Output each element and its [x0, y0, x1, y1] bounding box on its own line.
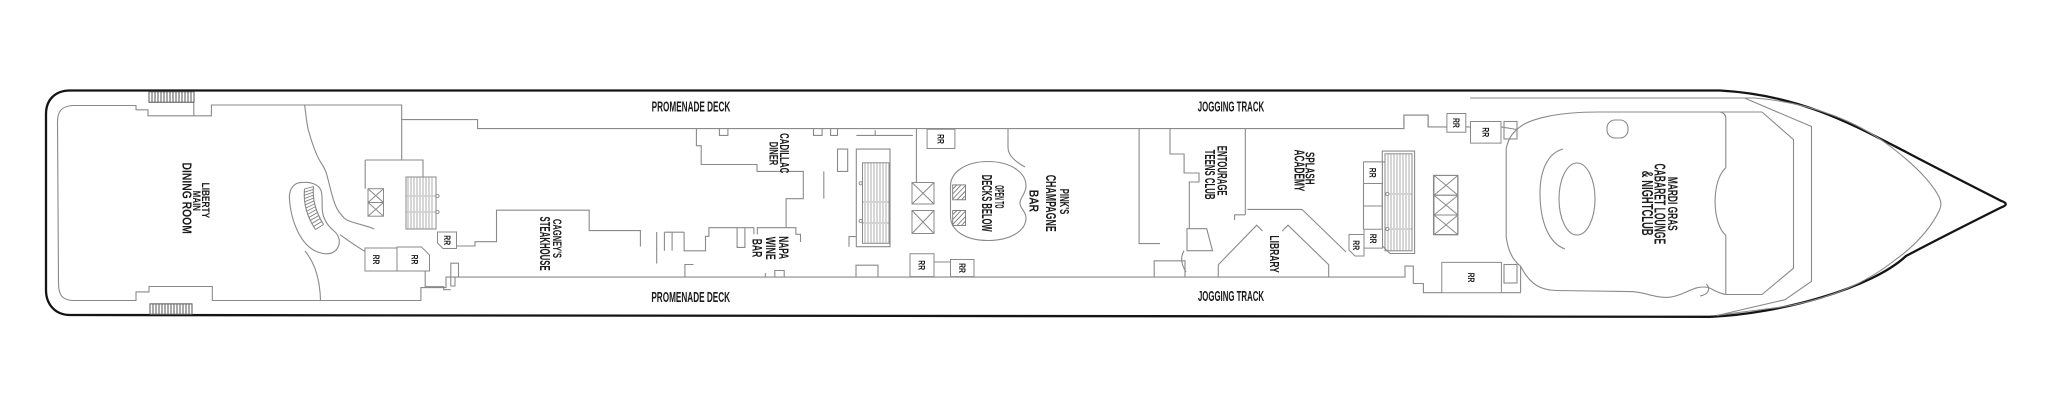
svg-text:ACADEMY: ACADEMY: [1290, 150, 1306, 192]
svg-text:RR: RR: [1368, 168, 1378, 178]
svg-text:RR: RR: [1351, 240, 1361, 250]
svg-text:RR: RR: [1481, 127, 1491, 137]
svg-text:RR: RR: [917, 260, 927, 270]
svg-text:RR: RR: [1368, 234, 1378, 244]
svg-text:RR: RR: [1466, 273, 1476, 283]
svg-text:PROMENADE DECK: PROMENADE DECK: [652, 100, 731, 116]
svg-text:RR: RR: [442, 235, 452, 245]
svg-text:STEAKHOUSE: STEAKHOUSE: [536, 217, 552, 271]
svg-text:LIBRARY: LIBRARY: [1267, 235, 1282, 272]
svg-text:DINER: DINER: [767, 142, 781, 166]
svg-text:TEENS CLUB: TEENS CLUB: [1201, 150, 1217, 200]
svg-text:RR: RR: [1451, 118, 1461, 128]
svg-text:JOGGING TRACK: JOGGING TRACK: [1198, 289, 1264, 305]
svg-text:RR: RR: [371, 255, 381, 265]
svg-text:RR: RR: [936, 134, 946, 144]
svg-text:PROMENADE DECK: PROMENADE DECK: [651, 290, 730, 306]
svg-text:BAR: BAR: [750, 239, 766, 258]
svg-text:DINING ROOM: DINING ROOM: [180, 163, 195, 234]
svg-text:CHAMPAGNE: CHAMPAGNE: [1042, 175, 1058, 232]
svg-text:BAR: BAR: [1027, 190, 1042, 213]
svg-text:DECKS BELOW: DECKS BELOW: [978, 175, 994, 232]
svg-text:RR: RR: [410, 255, 420, 265]
svg-text:& NIGHTCLUB: & NIGHTCLUB: [1638, 171, 1655, 236]
svg-text:JOGGING TRACK: JOGGING TRACK: [1198, 100, 1265, 116]
svg-text:PINK'S: PINK'S: [1057, 189, 1072, 215]
svg-text:RR: RR: [957, 263, 967, 273]
